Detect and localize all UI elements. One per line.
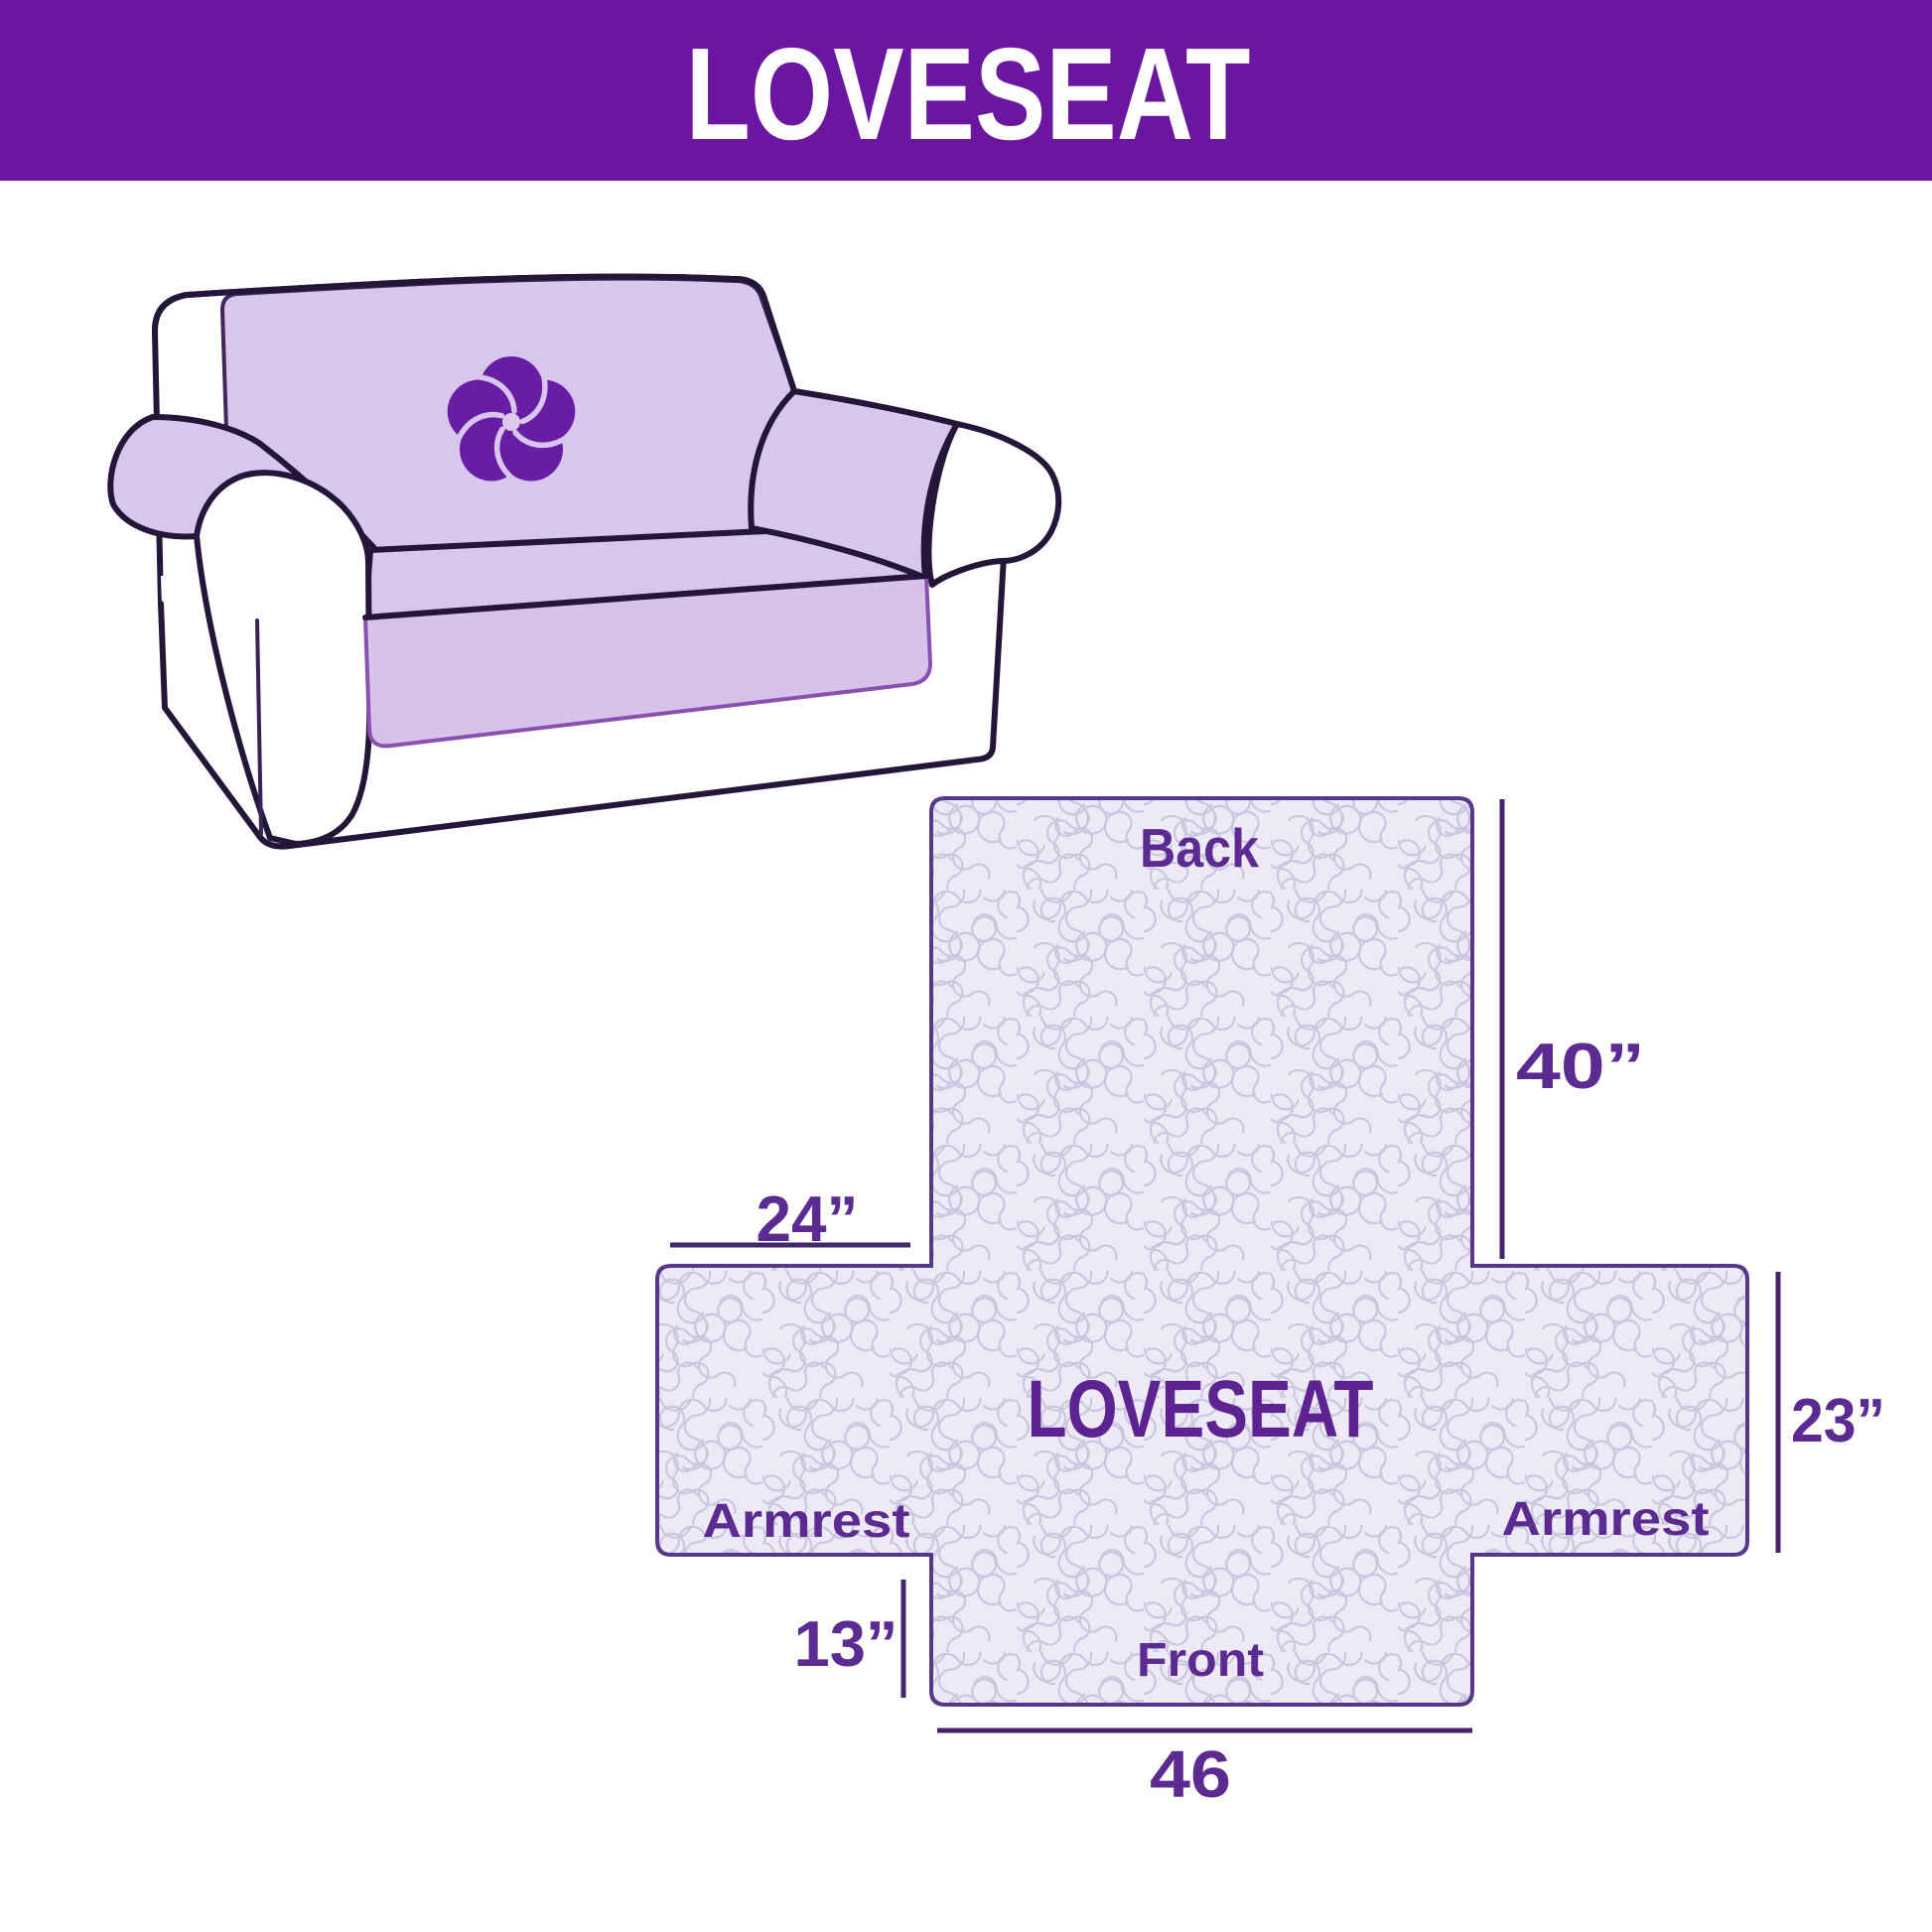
svg-text:40”: 40” <box>1516 1030 1645 1102</box>
svg-text:24”: 24” <box>757 1182 859 1255</box>
svg-text:23”: 23” <box>1791 1387 1885 1455</box>
svg-text:LOVESEAT: LOVESEAT <box>686 21 1251 167</box>
svg-text:Armrest: Armrest <box>1502 1493 1710 1546</box>
svg-text:LOVESEAT: LOVESEAT <box>1028 1364 1374 1454</box>
svg-text:13”: 13” <box>794 1607 898 1680</box>
svg-text:Back: Back <box>1140 817 1259 879</box>
svg-text:Front: Front <box>1137 1634 1264 1687</box>
svg-text:Armrest: Armrest <box>703 1495 910 1548</box>
svg-text:46: 46 <box>1150 1737 1231 1812</box>
